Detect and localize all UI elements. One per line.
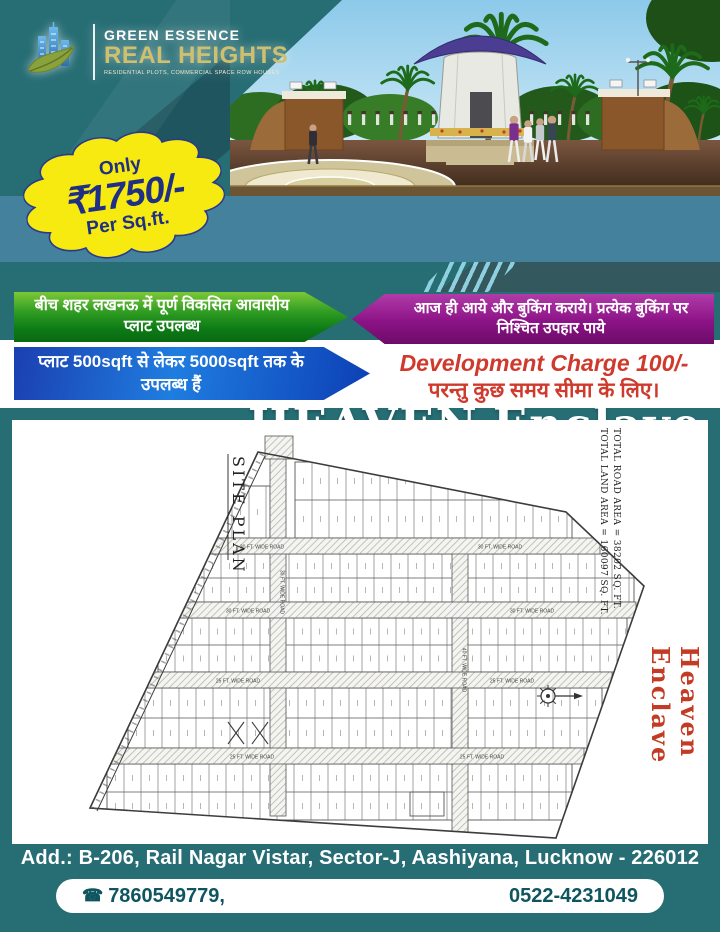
watermark-heaven-enclave: Heaven Enclave	[646, 646, 704, 844]
phone-number-2: 0522-4231049	[509, 885, 638, 908]
bottom-notch-plot	[410, 792, 444, 816]
dev-charge-line1: Development Charge 100/-	[386, 350, 702, 376]
road-label: 25 FT. WIDE ROAD	[216, 679, 261, 685]
logo-line2: REAL HEIGHTS	[104, 43, 288, 68]
phone-primary: ☎ 7860549779,	[82, 885, 225, 908]
ribbon-green-text: बीच शहर लखनऊ में पूर्ण विकसित आवासीय प्ल…	[26, 296, 298, 338]
site-plan-drawing: 30 FT. WIDE ROAD 30 FT. WIDE ROAD 30 FT.…	[12, 420, 708, 844]
road-label: 30 FT. WIDE ROAD	[279, 570, 285, 615]
road-label: 25 FT. WIDE ROAD	[230, 755, 275, 761]
total-land-area: TOTAL LAND AREA = 160097 SQ. FT.	[598, 428, 608, 615]
road-label: 40 FT. WIDE ROAD	[461, 648, 467, 693]
logo-line1: GREEN ESSENCE	[104, 28, 288, 43]
road-label: 30 FT. WIDE ROAD	[478, 545, 523, 551]
road-label: 30 FT. WIDE ROAD	[510, 609, 555, 615]
ribbon-magenta-offer: आज ही आये और बुकिंग कराये। प्रत्येक बुकि…	[352, 294, 714, 344]
plot-rows	[107, 462, 634, 820]
total-areas-note: TOTAL LAND AREA = 160097 SQ. FT. TOTAL R…	[598, 428, 621, 615]
svg-text:SITE PLAN: SITE PLAN	[229, 456, 248, 575]
total-road-area: TOTAL ROAD AREA = 38202 SQ. FT.	[611, 428, 621, 609]
site-plan-label: SITE PLAN	[228, 454, 248, 575]
road-label: 30 FT. WIDE ROAD	[226, 609, 271, 615]
site-plan-card: 30 FT. WIDE ROAD 30 FT. WIDE ROAD 30 FT.…	[12, 420, 708, 844]
road-label: 25 FT. WIDE ROAD	[460, 755, 505, 761]
ribbon-blue-text: प्लाट 500sqft से लेकर 5000sqft तक के उपल…	[26, 351, 316, 395]
logo-tagline: RESIDENTIAL PLOTS, COMMERCIAL SPACE ROW …	[104, 70, 288, 76]
flyer-poster: GREEN ESSENCE REAL HEIGHTS RESIDENTIAL P…	[0, 0, 720, 932]
ribbon-green-offer: बीच शहर लखनऊ में पूर्ण विकसित आवासीय प्ल…	[14, 292, 348, 342]
road-label: 25 FT. WIDE ROAD	[490, 679, 535, 685]
logo-divider	[93, 24, 95, 80]
contact-pill: ☎ 7860549779, 0522-4231049	[56, 879, 664, 913]
phone-icon: ☎	[82, 886, 103, 906]
ribbon-blue-offer: प्लाट 500sqft से लेकर 5000sqft तक के उपल…	[14, 347, 370, 400]
development-charge-note: Development Charge 100/- परन्तु कुछ समय …	[386, 350, 702, 404]
sold-x-marks	[228, 722, 268, 744]
dev-charge-line2: परन्तु कुछ समय सीमा के लिए।	[386, 379, 702, 403]
logo-buildings-leaf-icon	[24, 22, 84, 82]
entrance-photo	[230, 0, 720, 196]
ribbon-magenta-text: आज ही आये और बुकिंग कराये। प्रत्येक बुकि…	[396, 299, 706, 339]
company-logo: GREEN ESSENCE REAL HEIGHTS RESIDENTIAL P…	[24, 22, 288, 82]
road-strip	[230, 186, 720, 196]
address-line: Add.: B-206, Rail Nagar Vistar, Sector-J…	[0, 847, 720, 870]
phone-number-1: 7860549779,	[108, 885, 225, 908]
